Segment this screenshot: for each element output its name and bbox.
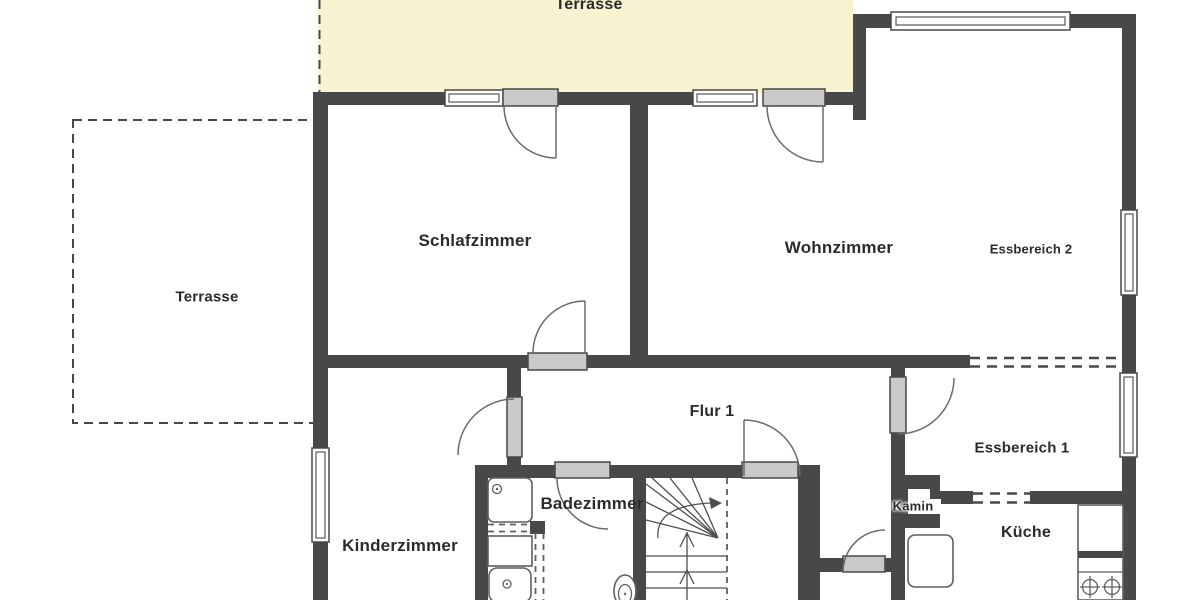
wall-segment <box>798 465 820 600</box>
fridge <box>908 535 953 587</box>
room-label-terrasse-top: Terrasse <box>555 0 622 14</box>
door-swing <box>767 106 823 162</box>
wall-segment <box>630 104 648 356</box>
room-label-kueche: Küche <box>1001 524 1051 542</box>
shower-drain-dot <box>496 488 498 490</box>
room-label-flur1: Flur 1 <box>690 403 735 421</box>
staircase <box>646 478 727 600</box>
wall-segment <box>820 558 843 572</box>
washbasin-faucet-dot <box>506 583 508 585</box>
room-label-terrasse-left: Terrasse <box>175 289 238 306</box>
room-label-badezimmer: Badezimmer <box>540 494 643 514</box>
window <box>1120 373 1137 457</box>
stair-direction-arrow <box>680 532 694 600</box>
wall-segment <box>1122 14 1136 210</box>
toilet <box>614 575 636 600</box>
terrace-left-area <box>73 120 314 423</box>
room-label-kinderzimmer: Kinderzimmer <box>342 536 458 556</box>
counter-divider <box>1078 551 1123 558</box>
wall-segment <box>1122 455 1136 600</box>
toilet-dot <box>624 593 626 595</box>
washing-machine <box>488 536 532 566</box>
open-passages <box>970 358 1122 503</box>
wall-segment <box>313 355 528 368</box>
wall-segment <box>507 368 521 398</box>
wall-segment <box>610 465 742 478</box>
room-label-essbereich2: Essbereich 2 <box>990 242 1073 257</box>
wall-segment <box>891 355 905 377</box>
terrace-left-floor <box>73 120 314 423</box>
door-swing <box>458 399 514 455</box>
door-leaf <box>890 377 906 433</box>
floor-plan: Terrasse Terrasse Schlafzimmer Wohnzimme… <box>0 0 1200 600</box>
room-label-essbereich1: Essbereich 1 <box>975 440 1070 457</box>
room-label-kamin: Kamin <box>893 499 934 514</box>
wall-segment <box>313 92 328 448</box>
washbasin <box>489 568 531 600</box>
partition-wall-stub <box>530 521 545 534</box>
door-swing <box>504 106 556 158</box>
room-label-schlafzimmer: Schlafzimmer <box>419 231 532 251</box>
wall-segment <box>1030 491 1123 504</box>
door-leaf <box>742 462 798 478</box>
wall-segment <box>1122 295 1136 375</box>
wall-segment <box>313 542 328 600</box>
window <box>1121 210 1137 295</box>
kitchen-fixtures <box>908 505 1123 600</box>
door-swing <box>533 301 585 353</box>
wall-segment <box>475 465 488 600</box>
wall-segment <box>891 433 905 600</box>
door-leaf <box>528 353 587 370</box>
wall-segment <box>633 470 646 600</box>
wall-segment <box>938 491 973 504</box>
door-leaf <box>503 89 558 106</box>
stair-curve-arrowhead <box>709 497 722 509</box>
door-leaf <box>843 556 885 572</box>
wall-segment <box>558 92 693 105</box>
wall-segment <box>313 92 445 105</box>
wall-segment <box>853 14 866 120</box>
window <box>891 12 1070 30</box>
window <box>312 448 329 542</box>
door-leaf <box>763 89 825 106</box>
window <box>693 90 757 106</box>
window <box>445 90 503 106</box>
wall-segment <box>587 355 970 368</box>
wall-segment <box>507 456 521 470</box>
door-leaf <box>507 397 522 457</box>
door-leaf <box>555 462 610 478</box>
room-label-wohnzimmer: Wohnzimmer <box>785 238 893 258</box>
